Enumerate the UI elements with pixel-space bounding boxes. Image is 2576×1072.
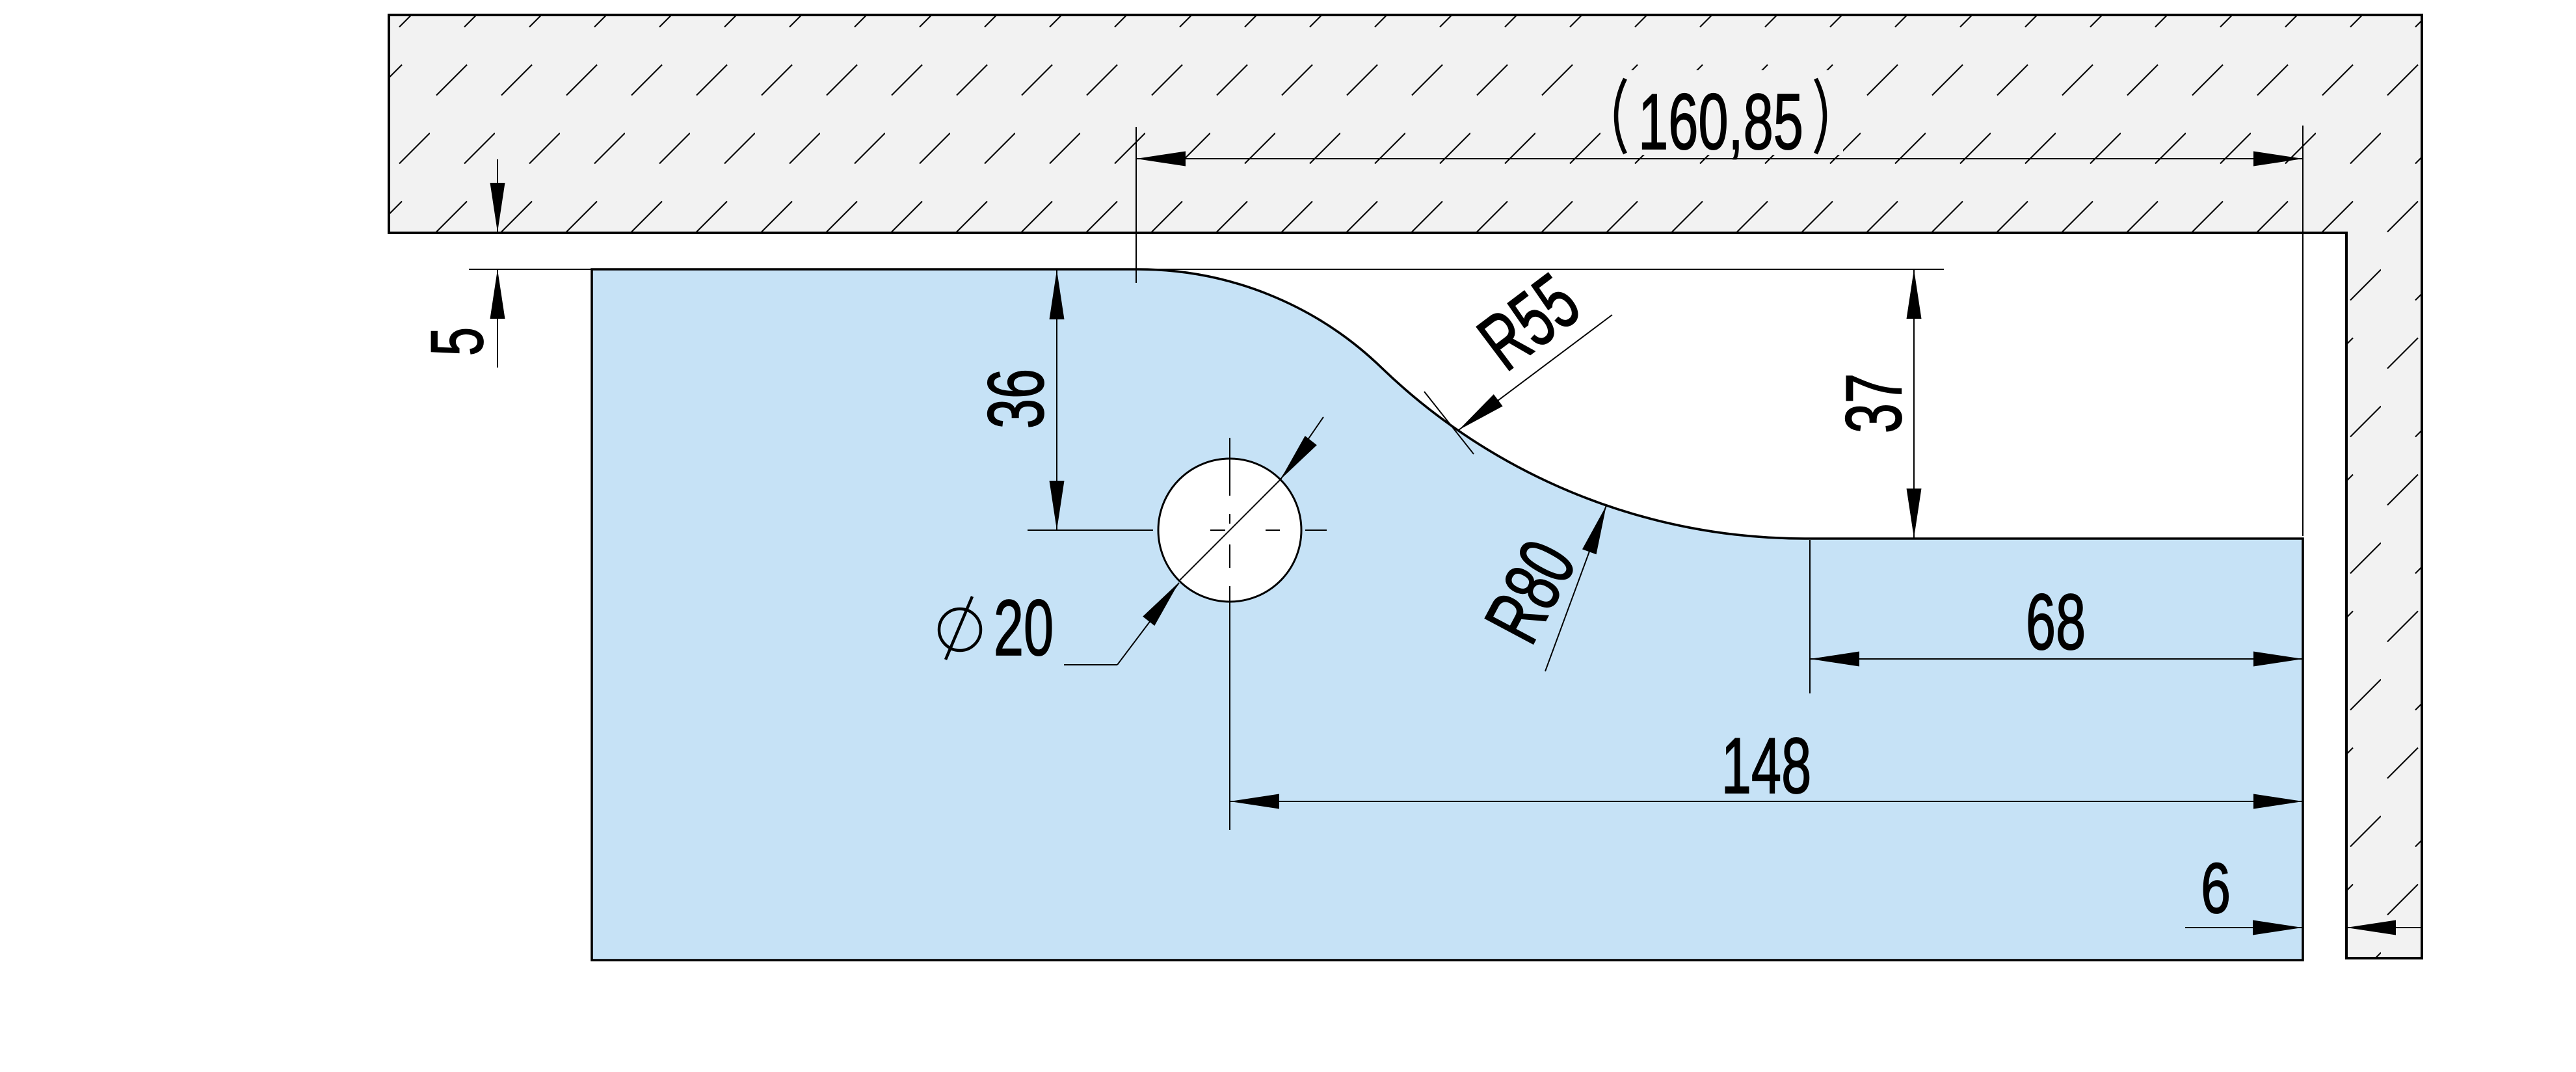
svg-text:5: 5 <box>416 327 498 356</box>
svg-text:20: 20 <box>994 584 1054 673</box>
svg-text:36: 36 <box>972 369 1061 429</box>
svg-text:68: 68 <box>2026 578 2086 667</box>
svg-text:37: 37 <box>1830 373 1919 433</box>
svg-text:160,85: 160,85 <box>1638 78 1803 167</box>
svg-text:148: 148 <box>1721 722 1811 811</box>
svg-text:6: 6 <box>2201 848 2231 928</box>
